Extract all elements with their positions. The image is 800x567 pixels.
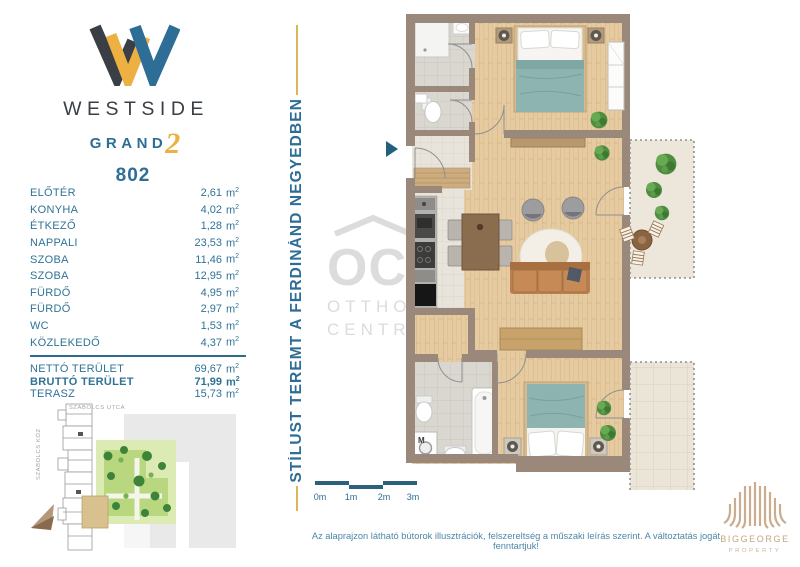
plant-icon (600, 425, 616, 441)
washer-label: M (418, 436, 425, 445)
table-row: FÜRDŐ2,97m2 (30, 301, 246, 318)
terrace-top (620, 140, 694, 278)
banner-slogan: STÍLUST TEREMT A FERDINÁND NEGYEDBEN (288, 98, 306, 483)
dining-table-icon (462, 214, 499, 270)
table-row: ELŐTÉR2,61m2 (30, 185, 246, 202)
total-label: BRUTTÓ TERÜLET (30, 376, 178, 388)
room-area-value: 4,95 (178, 287, 222, 299)
kitchen-counter: MO (412, 196, 437, 308)
total-value: 69,67 (178, 363, 222, 375)
area-unit: m2 (222, 237, 246, 250)
room-area-value: 4,37 (178, 337, 222, 349)
banner-gold-line-top (296, 25, 298, 95)
floor-plan: MO (398, 10, 708, 495)
area-unit: m2 (222, 303, 246, 316)
room-area-value: 12,95 (178, 270, 222, 282)
area-unit: m2 (222, 253, 246, 266)
nightstand-icon (588, 28, 604, 43)
highlighted-unit (82, 496, 108, 528)
nightstand-icon (496, 28, 512, 43)
table-row: NAPPALI23,53m2 (30, 235, 246, 252)
biggeorge-logo: BIGGEORGE PROPERTY (714, 476, 796, 561)
table-row: FÜRDŐ4,95m2 (30, 285, 246, 302)
shower-icon (415, 21, 449, 57)
pouf-icon (562, 197, 584, 219)
area-unit: m2 (222, 388, 246, 401)
scale-bar-svg: 0m 1m 2m 3m (313, 478, 421, 504)
entrance-arrow-icon (386, 141, 398, 157)
table-row: WC1,53m2 (30, 318, 246, 335)
area-unit: m2 (222, 187, 246, 200)
room-label: FÜRDŐ (30, 303, 178, 315)
area-unit: m2 (222, 220, 246, 233)
scale-bar: 0m 1m 2m 3m (313, 478, 421, 509)
scale-label: 2m (378, 492, 391, 502)
room-area-value: 1,28 (178, 220, 222, 232)
scale-label: 0m (314, 492, 327, 502)
floor-plan-svg: MO (398, 10, 708, 490)
area-unit: m2 (222, 376, 246, 389)
plant-icon (591, 112, 608, 129)
sofa-icon (510, 262, 590, 294)
disclaimer-text: Az alaprajzon látható bútorok illusztrác… (298, 531, 734, 551)
wardrobe-icon (608, 42, 624, 110)
street-label-left: SZABOLCS KÖZ (35, 428, 42, 480)
room-label: ÉTKEZŐ (30, 220, 178, 232)
scale-label: 3m (407, 492, 420, 502)
table-row: KONYHA4,02m2 (30, 202, 246, 219)
entry-mat-icon (414, 168, 470, 188)
hand-basin-icon (415, 94, 427, 103)
room-area-value: 2,61 (178, 187, 222, 199)
area-unit: m2 (222, 204, 246, 217)
area-unit: m2 (222, 270, 246, 283)
toilet-icon (416, 396, 432, 422)
plant-icon (597, 401, 611, 415)
westside-w-logo-icon (86, 24, 180, 86)
plant-icon (594, 145, 609, 160)
brand-logo-block: WESTSIDE GRAND2 802 (33, 24, 233, 187)
shelf-icon (511, 138, 585, 147)
room-label: NAPPALI (30, 237, 178, 249)
room-area-value: 11,46 (178, 254, 222, 266)
total-label: NETTÓ TERÜLET (30, 363, 178, 375)
street-label-top: SZABOLCS UTCA (69, 405, 125, 411)
pouf-icon (522, 199, 544, 221)
compass-arrow-icon (31, 504, 54, 530)
area-unit: m2 (222, 287, 246, 300)
total-label: TERASZ (30, 388, 178, 400)
brand-subtitle: GRAND2 (33, 122, 233, 156)
marketing-banner: STÍLUST TEREMT A FERDINÁND NEGYEDBEN (284, 25, 310, 511)
nightstand-icon (504, 438, 521, 455)
room-area-table: ELŐTÉR2,61m2 KONYHA4,02m2 ÉTKEZŐ1,28m2 N… (30, 185, 246, 401)
fridge-icon (413, 284, 436, 306)
bed-icon (524, 382, 588, 462)
room-label: KÖZLEKEDŐ (30, 337, 178, 349)
total-row-terasz: TERASZ15,73m2 (30, 388, 246, 401)
brand-sub-text: GRAND (90, 135, 168, 152)
total-value: 15,73 (178, 388, 222, 400)
room-label: KONYHA (30, 204, 178, 216)
table-row: KÖZLEKEDŐ4,37m2 (30, 334, 246, 351)
room-area-value: 2,97 (178, 303, 222, 315)
banner-gold-line-bottom (296, 486, 298, 511)
brand-wordmark: WESTSIDE (33, 98, 233, 121)
total-row-netto: NETTÓ TERÜLET69,67m2 (30, 363, 246, 376)
table-row: SZOBA11,46m2 (30, 251, 246, 268)
room-area-value: 23,53 (178, 237, 222, 249)
room-label: FÜRDŐ (30, 287, 178, 299)
site-location-map: SZABOLCS UTCA SZABOLCS KÖZ (26, 400, 254, 567)
area-unit: m2 (222, 320, 246, 333)
biggeorge-logo-svg: BIGGEORGE PROPERTY (714, 476, 796, 556)
room-label: SZOBA (30, 270, 178, 282)
brand-sub-number: 2 (165, 127, 180, 160)
site-map-svg: SZABOLCS UTCA SZABOLCS KÖZ (26, 400, 254, 562)
table-row: SZOBA12,95m2 (30, 268, 246, 285)
area-unit: m2 (222, 336, 246, 349)
scale-label: 1m (345, 492, 358, 502)
area-unit: m2 (222, 363, 246, 376)
total-value: 71,99 (178, 376, 222, 388)
nightstand-icon (590, 438, 607, 455)
room-label: SZOBA (30, 254, 178, 266)
biggeorge-mark-icon (724, 482, 786, 528)
room-label: WC (30, 320, 178, 332)
totals-divider (30, 355, 246, 357)
bed-icon (514, 26, 586, 112)
room-area-value: 1,53 (178, 320, 222, 332)
dishwasher-label: MO (429, 252, 434, 260)
room-area-value: 4,02 (178, 204, 222, 216)
terrace-bottom (630, 362, 694, 490)
apartment-number: 802 (33, 165, 233, 187)
total-row-brutto: BRUTTÓ TERÜLET71,99m2 (30, 376, 246, 389)
partner-division: PROPERTY (729, 548, 782, 554)
partner-name: BIGGEORGE (720, 534, 789, 544)
room-label: ELŐTÉR (30, 187, 178, 199)
table-row: ÉTKEZŐ1,28m2 (30, 218, 246, 235)
